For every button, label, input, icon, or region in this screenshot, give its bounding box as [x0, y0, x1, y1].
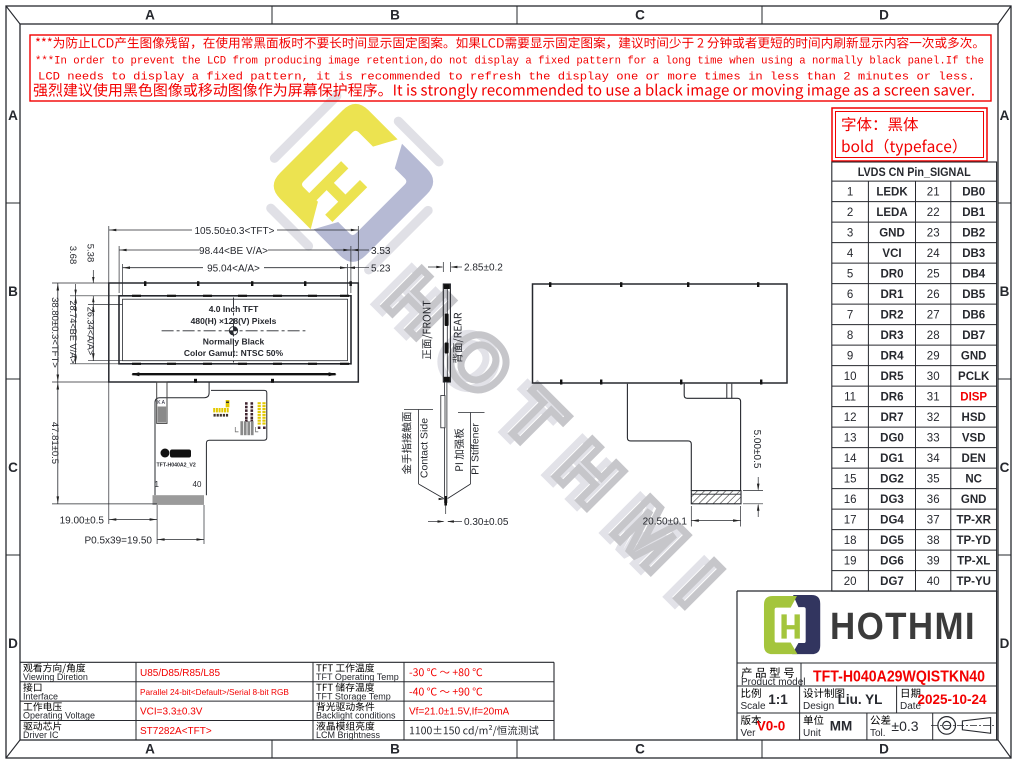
svg-text:P0.5x39=19.50: P0.5x39=19.50: [84, 536, 152, 547]
svg-text:14: 14: [844, 453, 857, 465]
svg-text:A: A: [1000, 108, 1010, 123]
svg-text:Viewing Diretion: Viewing Diretion: [23, 672, 88, 682]
svg-text:26: 26: [927, 289, 940, 301]
svg-text:HSD: HSD: [962, 412, 986, 424]
svg-text:32: 32: [927, 412, 940, 424]
svg-text:GND: GND: [961, 494, 987, 506]
svg-text:2.85±0.2: 2.85±0.2: [464, 263, 503, 274]
svg-text:DR2: DR2: [880, 310, 903, 322]
svg-text:D: D: [879, 742, 889, 757]
svg-text:98.44<BE V/A>: 98.44<BE V/A>: [199, 246, 268, 257]
svg-text:Contact Side: Contact Side: [419, 418, 431, 478]
svg-text:D: D: [879, 8, 889, 23]
svg-text:29: 29: [927, 351, 940, 363]
svg-text:105.50±0.3<TFT>: 105.50±0.3<TFT>: [195, 226, 275, 237]
svg-text:40: 40: [927, 576, 940, 588]
svg-text:8: 8: [847, 330, 853, 342]
svg-text:33: 33: [927, 433, 940, 445]
svg-text:DB7: DB7: [962, 330, 985, 342]
svg-text:95.04<A/A>: 95.04<A/A>: [207, 264, 260, 275]
svg-text:20.50±0.1: 20.50±0.1: [643, 517, 688, 528]
svg-text:LEDK: LEDK: [876, 187, 908, 199]
svg-text:17: 17: [844, 515, 857, 527]
svg-text:D: D: [8, 636, 18, 651]
svg-text:B: B: [1000, 284, 1010, 299]
svg-text:2: 2: [847, 207, 853, 219]
svg-text:DEN: DEN: [962, 453, 986, 465]
svg-text:DISP: DISP: [960, 392, 987, 404]
svg-text:DG0: DG0: [880, 433, 904, 445]
svg-text:PI Stiffener: PI Stiffener: [470, 423, 482, 475]
svg-text:VSD: VSD: [962, 433, 986, 445]
svg-text:A: A: [8, 108, 18, 123]
svg-text:20: 20: [844, 576, 857, 588]
svg-text:Product model: Product model: [741, 677, 805, 688]
svg-text:5.38: 5.38: [85, 244, 96, 263]
svg-text:9: 9: [847, 351, 853, 363]
svg-text:19.00±0.5: 19.00±0.5: [60, 516, 105, 527]
svg-text:C: C: [635, 8, 645, 23]
svg-text:18: 18: [844, 535, 857, 547]
svg-text:NC: NC: [965, 474, 982, 486]
svg-text:26.34<A/A>: 26.34<A/A>: [86, 307, 96, 356]
svg-text:DG4: DG4: [880, 515, 904, 527]
svg-text:Design: Design: [803, 701, 834, 712]
svg-text:36: 36: [927, 494, 940, 506]
svg-text:C: C: [1000, 460, 1010, 475]
svg-text:1: 1: [155, 480, 160, 489]
svg-text:1: 1: [847, 187, 853, 199]
svg-text:K A: K A: [157, 400, 165, 406]
svg-text:Operating Voltage: Operating Voltage: [23, 711, 95, 721]
svg-text:GND: GND: [961, 351, 987, 363]
svg-text:C: C: [8, 460, 18, 475]
svg-text:LVDS CN Pin_SIGNAL: LVDS CN Pin_SIGNAL: [858, 165, 971, 179]
svg-text:TFT-H040A2_V2: TFT-H040A2_V2: [157, 463, 196, 469]
svg-text:DB1: DB1: [962, 207, 986, 219]
svg-text:LEDA: LEDA: [876, 207, 907, 219]
svg-text:TFT-H040A29WQISTKN40: TFT-H040A29WQISTKN40: [813, 669, 985, 686]
svg-text:Scale: Scale: [741, 701, 766, 712]
svg-text:DB4: DB4: [962, 269, 986, 281]
svg-text:37: 37: [927, 515, 940, 527]
svg-text:LCM Brightness: LCM Brightness: [316, 730, 381, 740]
svg-text:6: 6: [847, 289, 853, 301]
svg-text:3.53: 3.53: [371, 246, 391, 257]
svg-text:Driver IC: Driver IC: [23, 730, 59, 740]
svg-text:U85/D85/R85/L85: U85/D85/R85/L85: [140, 668, 220, 679]
svg-text:VCI: VCI: [882, 248, 901, 260]
svg-text:47.81±0.5: 47.81±0.5: [49, 422, 60, 464]
svg-text:DR7: DR7: [880, 412, 903, 424]
svg-text:LCD needs to display a fixed p: LCD needs to display a fixed pattern, it…: [38, 72, 975, 84]
svg-text:DB0: DB0: [962, 187, 985, 199]
svg-text:39: 39: [927, 556, 940, 568]
svg-text:TP-YU: TP-YU: [956, 576, 991, 588]
svg-text:1:1: 1:1: [768, 692, 788, 707]
svg-text:3: 3: [847, 228, 853, 240]
svg-text:21: 21: [927, 187, 940, 199]
svg-text:TFT Storage Temp: TFT Storage Temp: [316, 691, 391, 701]
svg-text:19: 19: [844, 556, 857, 568]
svg-text:DB2: DB2: [962, 228, 985, 240]
svg-text:3.68: 3.68: [67, 246, 78, 265]
svg-text:DB3: DB3: [962, 248, 985, 260]
svg-text:Tol.: Tol.: [870, 728, 886, 739]
svg-text:±0.3: ±0.3: [891, 718, 918, 734]
svg-text:DR4: DR4: [880, 351, 904, 363]
svg-text:DR6: DR6: [880, 392, 903, 404]
svg-text:MM: MM: [830, 719, 853, 734]
svg-text:7: 7: [847, 310, 853, 322]
svg-text:DG7: DG7: [880, 576, 904, 588]
svg-text:B: B: [8, 284, 18, 299]
svg-text:38: 38: [927, 535, 940, 547]
svg-text:TP-YD: TP-YD: [956, 535, 991, 547]
svg-text:25: 25: [927, 269, 940, 281]
svg-text:5.00±0.5: 5.00±0.5: [751, 430, 762, 469]
svg-text:B: B: [390, 742, 400, 757]
svg-text:DR0: DR0: [880, 269, 903, 281]
svg-text:4: 4: [847, 248, 854, 260]
svg-text:16: 16: [844, 494, 857, 506]
svg-text:DR1: DR1: [880, 289, 904, 301]
svg-text:***In order to prevent the LCD: ***In order to prevent the LCD from prod…: [35, 56, 984, 68]
svg-text:22: 22: [927, 207, 940, 219]
svg-text:VCI=3.3±0.3V: VCI=3.3±0.3V: [140, 707, 203, 718]
svg-text:28: 28: [927, 330, 940, 342]
svg-text:TP-XR: TP-XR: [956, 515, 991, 527]
svg-text:38.80±0.3<TFT>: 38.80±0.3<TFT>: [49, 297, 60, 368]
svg-text:TP-XL: TP-XL: [957, 556, 990, 568]
svg-text:2025-10-24: 2025-10-24: [917, 692, 987, 707]
svg-text:Backlight conditions: Backlight conditions: [316, 711, 396, 721]
svg-text:DG2: DG2: [880, 474, 904, 486]
svg-text:5.23: 5.23: [371, 264, 391, 275]
svg-text:Unit: Unit: [803, 728, 821, 739]
svg-text:0.30±0.05: 0.30±0.05: [464, 517, 509, 528]
svg-text:23: 23: [927, 228, 940, 240]
svg-text:12: 12: [844, 412, 857, 424]
svg-text:Parallel 24-bit<Default>/Seria: Parallel 24-bit<Default>/Serial 8-bit RG…: [140, 687, 289, 697]
svg-text:DR5: DR5: [880, 371, 904, 383]
svg-text:PCLK: PCLK: [958, 371, 990, 383]
svg-text:DR3: DR3: [880, 330, 903, 342]
svg-text:27: 27: [927, 310, 940, 322]
svg-text:HOTHMI: HOTHMI: [830, 606, 976, 648]
svg-text:Vf=21.0±1.5V,If=20mA: Vf=21.0±1.5V,If=20mA: [409, 707, 510, 718]
svg-text:35: 35: [927, 474, 940, 486]
svg-text:40: 40: [193, 480, 202, 489]
svg-text:Ver: Ver: [741, 728, 757, 739]
svg-text:B: B: [390, 8, 400, 23]
svg-text:DG1: DG1: [880, 453, 904, 465]
svg-text:C: C: [635, 742, 645, 757]
svg-text:GND: GND: [879, 228, 905, 240]
svg-text:11: 11: [844, 392, 856, 404]
svg-text:DB5: DB5: [962, 289, 986, 301]
svg-text:30: 30: [927, 371, 940, 383]
svg-text:Liu. YL: Liu. YL: [838, 692, 883, 707]
svg-text:31: 31: [927, 392, 940, 404]
svg-text:V0-0: V0-0: [757, 719, 786, 734]
svg-text:TFT Operating Temp: TFT Operating Temp: [316, 672, 399, 682]
svg-text:DG5: DG5: [880, 535, 904, 547]
svg-text:DB6: DB6: [962, 310, 985, 322]
svg-text:A: A: [145, 742, 155, 757]
svg-text:5: 5: [847, 269, 853, 281]
svg-text:13: 13: [844, 433, 857, 445]
svg-text:DG3: DG3: [880, 494, 904, 506]
svg-text:DG6: DG6: [880, 556, 904, 568]
svg-text:ST7282A<TFT>: ST7282A<TFT>: [140, 726, 212, 737]
svg-text:15: 15: [844, 474, 857, 486]
svg-text:24: 24: [927, 248, 940, 260]
svg-text:A: A: [145, 8, 155, 23]
svg-text:10: 10: [844, 371, 857, 383]
svg-text:Interface: Interface: [23, 691, 58, 701]
svg-text:34: 34: [927, 453, 940, 465]
svg-text:D: D: [1000, 636, 1010, 651]
